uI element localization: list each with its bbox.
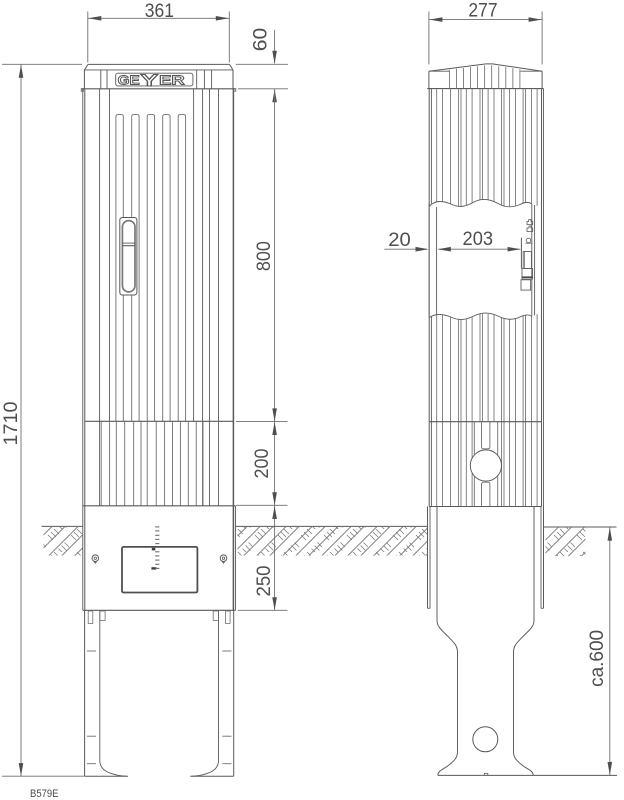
svg-text:Y: Y — [141, 71, 160, 90]
svg-text:GE: GE — [118, 72, 140, 87]
svg-text:ca.600: ca.600 — [586, 630, 608, 687]
svg-text:20: 20 — [388, 229, 411, 251]
svg-text:B579E: B579E — [30, 788, 59, 800]
svg-text:800: 800 — [253, 241, 275, 271]
svg-text:361: 361 — [145, 0, 174, 22]
svg-text:203: 203 — [463, 228, 494, 250]
svg-text:277: 277 — [468, 0, 497, 21]
svg-text:200: 200 — [251, 448, 273, 478]
svg-text:ER: ER — [159, 72, 185, 87]
svg-text:60: 60 — [249, 28, 271, 52]
svg-text:1710: 1710 — [0, 401, 22, 445]
svg-text:250: 250 — [253, 565, 275, 596]
